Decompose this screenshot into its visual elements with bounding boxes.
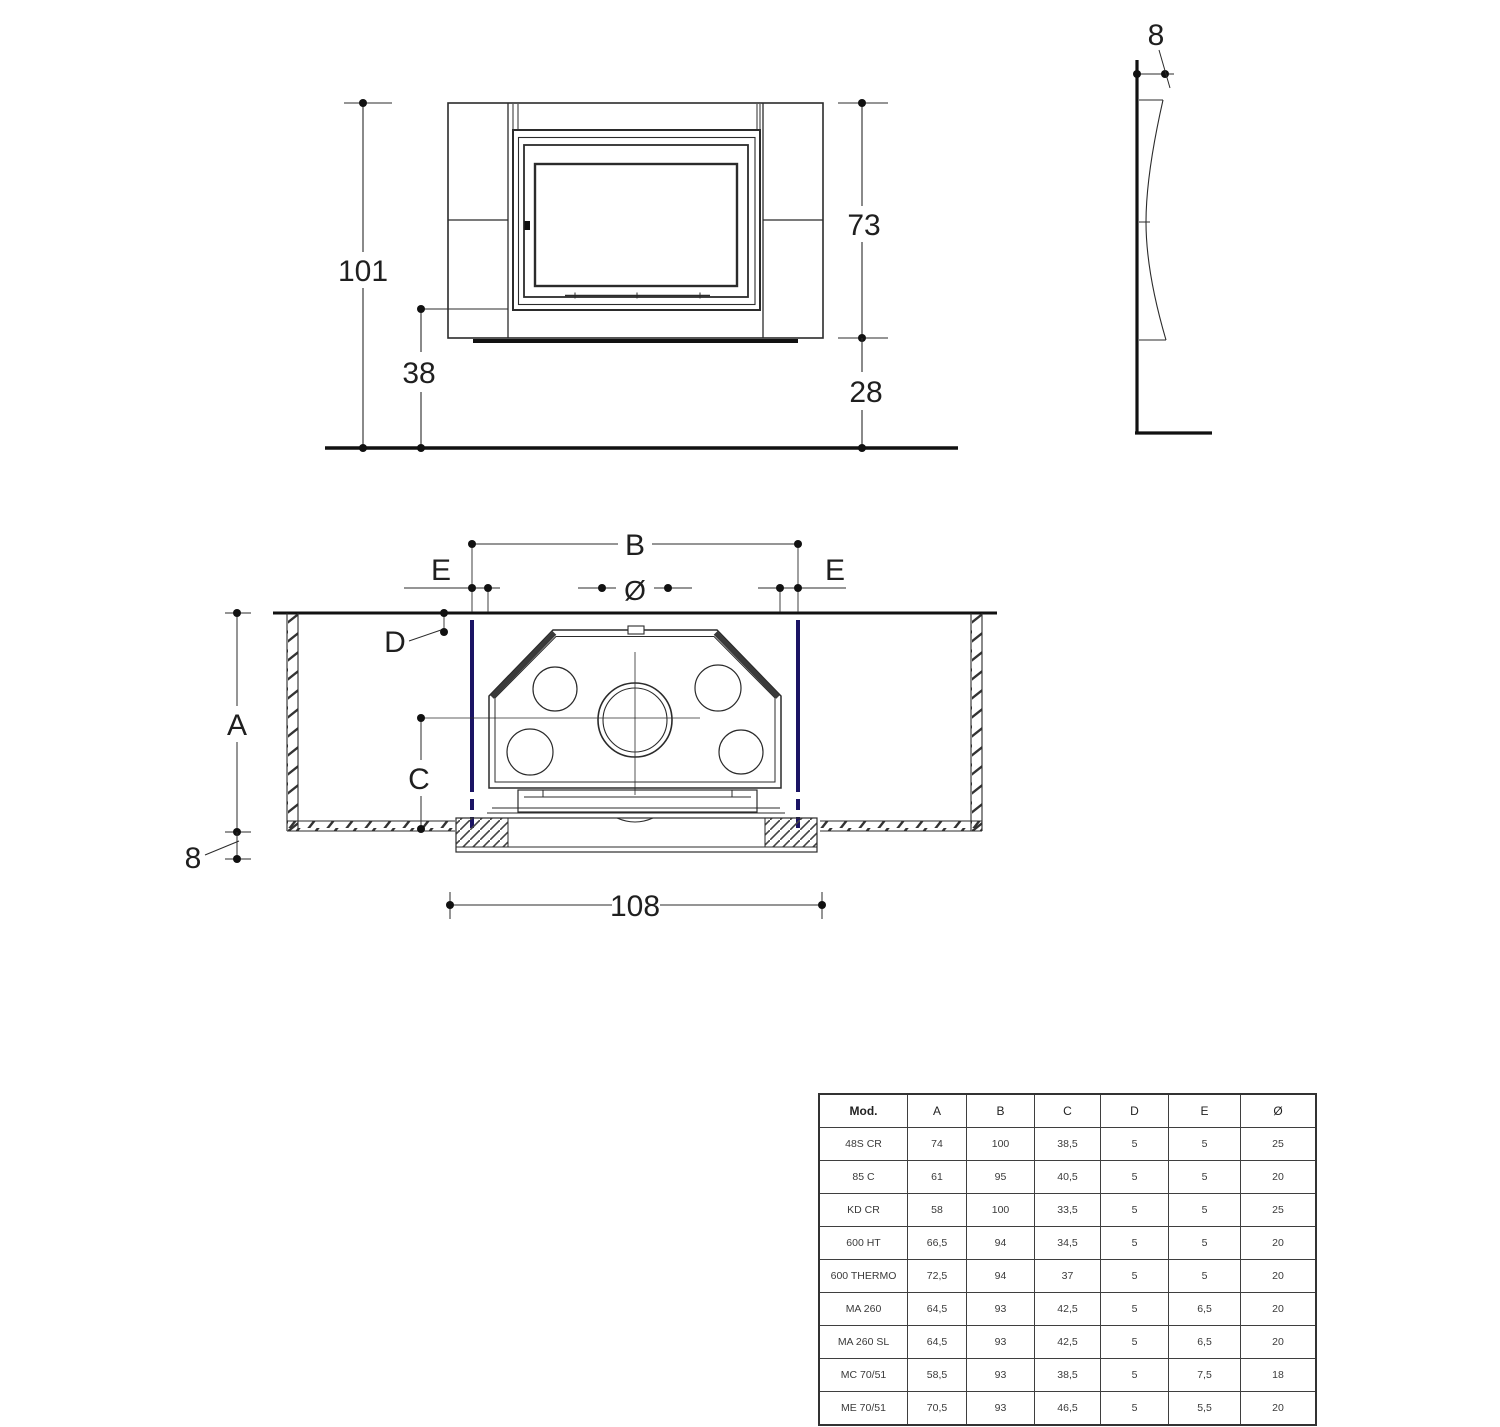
value-cell: 18: [1241, 1358, 1317, 1391]
dim-E-left-label: E: [431, 554, 451, 587]
value-cell: 61: [908, 1160, 967, 1193]
value-cell: 40,5: [1035, 1160, 1101, 1193]
dim-108-label: 108: [610, 890, 660, 923]
model-cell: 600 HT: [819, 1226, 908, 1259]
dim-8-side: 8: [1133, 19, 1174, 88]
value-cell: 93: [967, 1358, 1035, 1391]
model-cell: MA 260: [819, 1292, 908, 1325]
header-b: B: [967, 1094, 1035, 1127]
wall-left: [287, 613, 298, 831]
value-cell: 42,5: [1035, 1325, 1101, 1358]
dim-E-right-label: E: [825, 554, 845, 587]
value-cell: 5: [1101, 1358, 1169, 1391]
model-cell: KD CR: [819, 1193, 908, 1226]
convection-outlet: [719, 730, 763, 774]
value-cell: 93: [967, 1325, 1035, 1358]
value-cell: 37: [1035, 1259, 1101, 1292]
dim-D: D: [384, 609, 448, 659]
dim-E-left: E: [404, 554, 500, 612]
value-cell: 5: [1101, 1259, 1169, 1292]
value-cell: 38,5: [1035, 1358, 1101, 1391]
value-cell: 5: [1101, 1226, 1169, 1259]
value-cell: 5: [1169, 1127, 1241, 1160]
value-cell: 42,5: [1035, 1292, 1101, 1325]
value-cell: 100: [967, 1193, 1035, 1226]
value-cell: 6,5: [1169, 1325, 1241, 1358]
value-cell: 33,5: [1035, 1193, 1101, 1226]
value-cell: 70,5: [908, 1391, 967, 1425]
header-e: E: [1169, 1094, 1241, 1127]
foot-right: [765, 818, 817, 847]
table-row: MA 26064,59342,556,520: [819, 1292, 1316, 1325]
table-row: ME 70/5170,59346,555,520: [819, 1391, 1316, 1425]
value-cell: 25: [1241, 1193, 1317, 1226]
header-d: D: [1101, 1094, 1169, 1127]
value-cell: 5: [1101, 1193, 1169, 1226]
spec-table-body: 48S CR7410038,5552585 C619540,55520KD CR…: [819, 1127, 1316, 1425]
dim-28: 28: [849, 338, 882, 452]
table-row: 600 THERMO72,594375520: [819, 1259, 1316, 1292]
convection-outlet: [695, 665, 741, 711]
value-cell: 20: [1241, 1226, 1317, 1259]
table-row: 48S CR7410038,55525: [819, 1127, 1316, 1160]
value-cell: 7,5: [1169, 1358, 1241, 1391]
dim-38-label: 38: [402, 357, 435, 390]
value-cell: 5: [1101, 1292, 1169, 1325]
model-cell: ME 70/51: [819, 1391, 908, 1425]
header-a: A: [908, 1094, 967, 1127]
wall-bottom-left: [287, 821, 455, 831]
value-cell: 93: [967, 1391, 1035, 1425]
dim-C: C: [408, 714, 700, 833]
value-cell: 95: [967, 1160, 1035, 1193]
dim-A: A: [225, 609, 251, 836]
value-cell: 72,5: [908, 1259, 967, 1292]
value-cell: 58,5: [908, 1358, 967, 1391]
value-cell: 5: [1169, 1226, 1241, 1259]
header-c: C: [1035, 1094, 1101, 1127]
dim-C-label: C: [408, 763, 430, 796]
foot-left: [456, 818, 508, 847]
side-view: 8: [1133, 19, 1212, 433]
table-row: 85 C619540,55520: [819, 1160, 1316, 1193]
technical-drawing-page: 101 38 73 28: [0, 0, 1500, 1427]
dim-101: 101: [338, 99, 392, 452]
value-cell: 5: [1101, 1325, 1169, 1358]
dim-B-label: B: [625, 529, 645, 562]
model-cell: 85 C: [819, 1160, 908, 1193]
dim-diameter-label: Ø: [624, 575, 646, 606]
value-cell: 58: [908, 1193, 967, 1226]
value-cell: 5,5: [1169, 1391, 1241, 1425]
value-cell: 94: [967, 1226, 1035, 1259]
door-handle: [525, 221, 531, 230]
table-row: 600 HT66,59434,55520: [819, 1226, 1316, 1259]
value-cell: 66,5: [908, 1226, 967, 1259]
value-cell: 5: [1169, 1259, 1241, 1292]
model-cell: 600 THERMO: [819, 1259, 908, 1292]
dim-D-label: D: [384, 626, 406, 659]
value-cell: 20: [1241, 1391, 1317, 1425]
table-row: MA 260 SL64,59342,556,520: [819, 1325, 1316, 1358]
dim-38: 38: [402, 305, 508, 452]
wall-right: [971, 613, 982, 831]
value-cell: 38,5: [1035, 1127, 1101, 1160]
wall-bottom-right: [820, 821, 982, 831]
surround-outline: [448, 103, 823, 338]
dim-108: 108: [446, 890, 826, 923]
value-cell: 20: [1241, 1292, 1317, 1325]
model-cell: MA 260 SL: [819, 1325, 908, 1358]
value-cell: 5: [1169, 1193, 1241, 1226]
dim-diameter: Ø: [578, 575, 692, 606]
dim-28-label: 28: [849, 376, 882, 409]
value-cell: 74: [908, 1127, 967, 1160]
header-ø: Ø: [1241, 1094, 1317, 1127]
table-header: Mod.ABCDEØ: [819, 1094, 1316, 1127]
value-cell: 20: [1241, 1325, 1317, 1358]
value-cell: 46,5: [1035, 1391, 1101, 1425]
front-view: 101 38 73 28: [325, 99, 958, 452]
dim-E-right: E: [758, 554, 846, 612]
dim-8-side-label: 8: [1148, 19, 1165, 52]
convection-outlet: [533, 667, 577, 711]
dim-A-label: A: [227, 709, 247, 742]
table-header-row: Mod.ABCDEØ: [819, 1094, 1316, 1127]
dim-73-label: 73: [847, 209, 880, 242]
insert-front: [473, 130, 798, 341]
dim-8-plan-label: 8: [185, 842, 202, 875]
value-cell: 64,5: [908, 1325, 967, 1358]
plan-section-view: B E E Ø: [185, 529, 997, 923]
model-cell: 48S CR: [819, 1127, 908, 1160]
value-cell: 20: [1241, 1259, 1317, 1292]
value-cell: 64,5: [908, 1292, 967, 1325]
dim-73: 73: [838, 99, 888, 342]
value-cell: 93: [967, 1292, 1035, 1325]
value-cell: 5: [1101, 1160, 1169, 1193]
insert-plan: [456, 626, 817, 852]
value-cell: 5: [1169, 1160, 1241, 1193]
value-cell: 5: [1101, 1127, 1169, 1160]
convection-outlet: [507, 729, 553, 775]
value-cell: 34,5: [1035, 1226, 1101, 1259]
value-cell: 20: [1241, 1160, 1317, 1193]
table-row: MC 70/5158,59338,557,518: [819, 1358, 1316, 1391]
header-model: Mod.: [819, 1094, 908, 1127]
dimensions-table: Mod.ABCDEØ 48S CR7410038,5552585 C619540…: [818, 1093, 1317, 1426]
dim-8-plan: 8: [185, 832, 251, 875]
value-cell: 6,5: [1169, 1292, 1241, 1325]
panel-profile: [1139, 100, 1166, 340]
value-cell: 94: [967, 1259, 1035, 1292]
model-cell: MC 70/51: [819, 1358, 908, 1391]
glass-window: [535, 164, 737, 286]
value-cell: 25: [1241, 1127, 1317, 1160]
table-row: KD CR5810033,55525: [819, 1193, 1316, 1226]
value-cell: 100: [967, 1127, 1035, 1160]
dim-101-label: 101: [338, 255, 388, 288]
value-cell: 5: [1101, 1391, 1169, 1425]
